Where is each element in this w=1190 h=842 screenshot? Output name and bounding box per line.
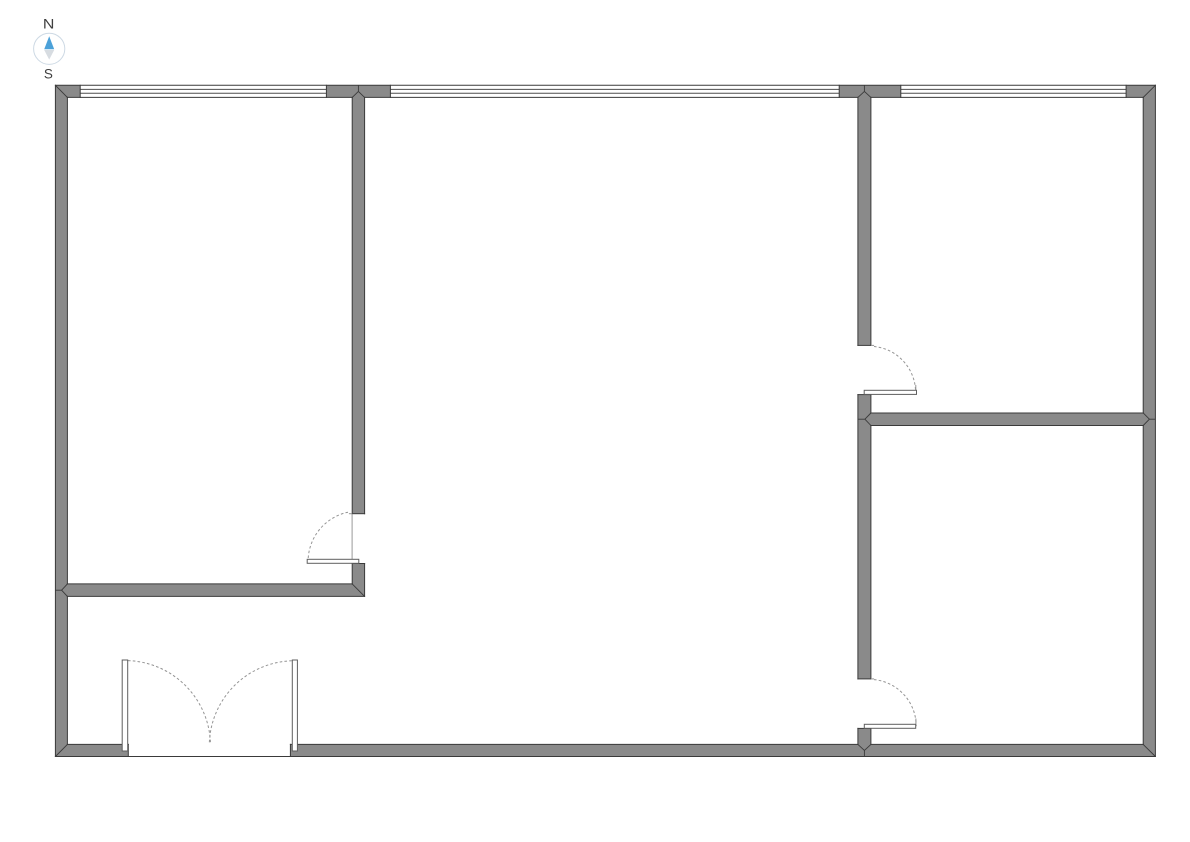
svg-text:S: S xyxy=(44,66,53,81)
svg-text:N: N xyxy=(43,17,55,32)
